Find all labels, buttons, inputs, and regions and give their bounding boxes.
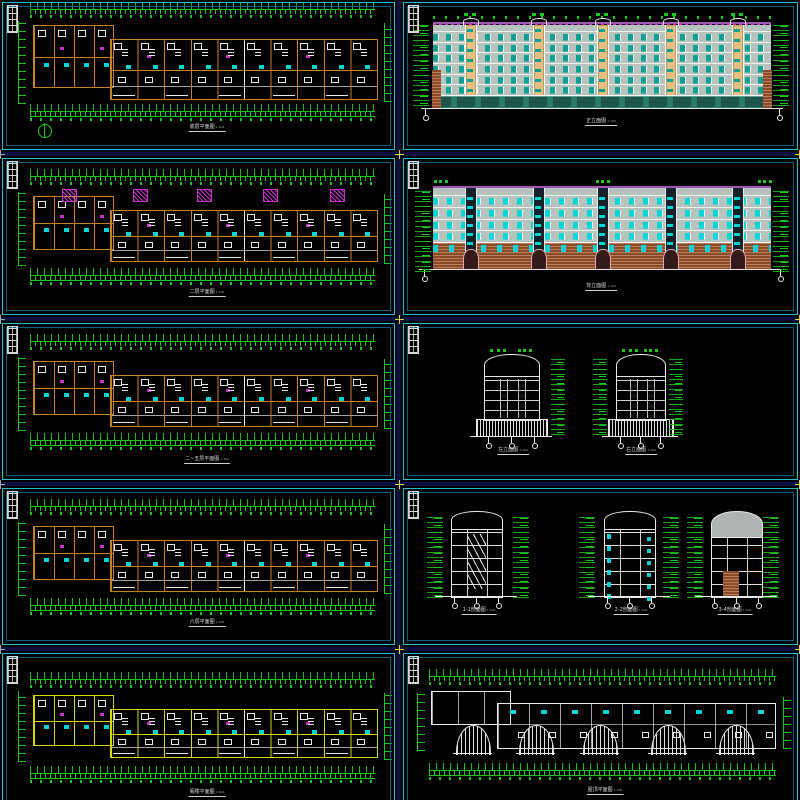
sheet-scale: 1:100	[216, 620, 225, 624]
sheet-scale: 1:100	[220, 457, 229, 461]
signature-strip	[408, 326, 419, 354]
signature-strip	[7, 326, 18, 354]
sheet-title: 左立面图1:100	[497, 447, 529, 455]
sheet-roof-plan: 屋顶平面图1:100	[401, 651, 800, 800]
signature-strip	[7, 491, 18, 519]
sheet-title-text: 3-4剖面图	[719, 607, 742, 613]
signature-strip	[408, 5, 419, 33]
sheet-title-text: 2-2剖面图	[615, 607, 638, 613]
signature-strip	[7, 161, 18, 189]
signature-strip	[408, 491, 419, 519]
sheet-title-text: 1-1剖面图	[463, 607, 486, 613]
sheet-scale: 1:100	[216, 790, 225, 794]
sheet-title: 3-4剖面图1:100	[718, 607, 753, 615]
sheet-title-text: 正立面图	[586, 118, 606, 124]
sheet-ground-floor-plan: 底层平面图1:100	[0, 0, 397, 152]
signature-strip	[408, 656, 419, 684]
sheet-scale: 1:100	[607, 284, 616, 288]
sheet-scale: 1:100	[647, 448, 656, 452]
sheet-border-inner	[407, 327, 794, 476]
sheet-title-text: 阁楼平面图	[190, 789, 215, 795]
sheet-title: 六层平面图1:100	[189, 619, 226, 627]
sheet-second-floor-plan: 二层平面图1:100	[0, 156, 397, 317]
sheet-title-text: 右立面图	[626, 447, 646, 453]
sheet-title-text: 背立面图	[586, 283, 606, 289]
sheet-border-inner	[6, 327, 391, 476]
sheet-scale: 1:100	[216, 125, 225, 129]
sheet-title-text: 二层平面图	[190, 289, 215, 295]
sheet-scale: 1:100	[614, 788, 623, 792]
sheet-title: 2-2剖面图1:100	[614, 607, 649, 615]
sheet-title-text: 左立面图	[498, 447, 518, 453]
sheet-sixth-floor-plan: 六层平面图1:100	[0, 486, 397, 647]
sheet-scale: 1:100	[743, 608, 752, 612]
sheet-border-inner	[6, 657, 391, 800]
sheet-rear-elevation: 背立面图1:100	[401, 156, 800, 317]
signature-strip	[7, 656, 18, 684]
sheet-title: 背立面图1:100	[585, 283, 617, 291]
sheet-title: 屋顶平面图1:100	[587, 787, 624, 795]
sheet-border-inner	[407, 492, 794, 641]
sheet-attic-floor-plan: 阁楼平面图1:100	[0, 651, 397, 800]
sheet-title: 右立面图1:100	[625, 447, 657, 455]
sheet-title-text: 二~五层平面图	[185, 456, 219, 462]
sheet-title: 1-1剖面图1:100	[462, 607, 497, 615]
sheet-title: 底层平面图1:100	[189, 124, 226, 132]
cad-sheet-montage: 底层平面图1:100 正立面图1:100 二层平面图1:100 背立面图1:10…	[0, 0, 800, 800]
sheet-scale: 1:100	[607, 119, 616, 123]
sheet-title: 阁楼平面图1:100	[189, 789, 226, 797]
sheet-typical-floor-plan: 二~五层平面图1:100	[0, 321, 397, 482]
sheet-front-elevation: 正立面图1:100	[401, 0, 800, 152]
sheet-title-text: 六层平面图	[190, 619, 215, 625]
sheet-sections: 1-1剖面图1:100 2-2剖面图1:100 3-4剖面图1:100	[401, 486, 800, 647]
sheet-title: 二~五层平面图1:100	[184, 456, 230, 464]
sheet-border-inner	[407, 657, 794, 800]
sheet-scale: 1:100	[487, 608, 496, 612]
signature-strip	[7, 5, 18, 33]
sheet-title: 二层平面图1:100	[189, 289, 226, 297]
sheet-title-text: 屋顶平面图	[588, 787, 613, 793]
sheet-side-elevations: 左立面图1:100 右立面图1:100	[401, 321, 800, 482]
sheet-scale: 1:100	[639, 608, 648, 612]
sheet-scale: 1:100	[519, 448, 528, 452]
signature-strip	[408, 161, 419, 189]
sheet-title: 正立面图1:100	[585, 118, 617, 126]
sheet-title-text: 底层平面图	[190, 124, 215, 130]
sheet-scale: 1:100	[216, 290, 225, 294]
